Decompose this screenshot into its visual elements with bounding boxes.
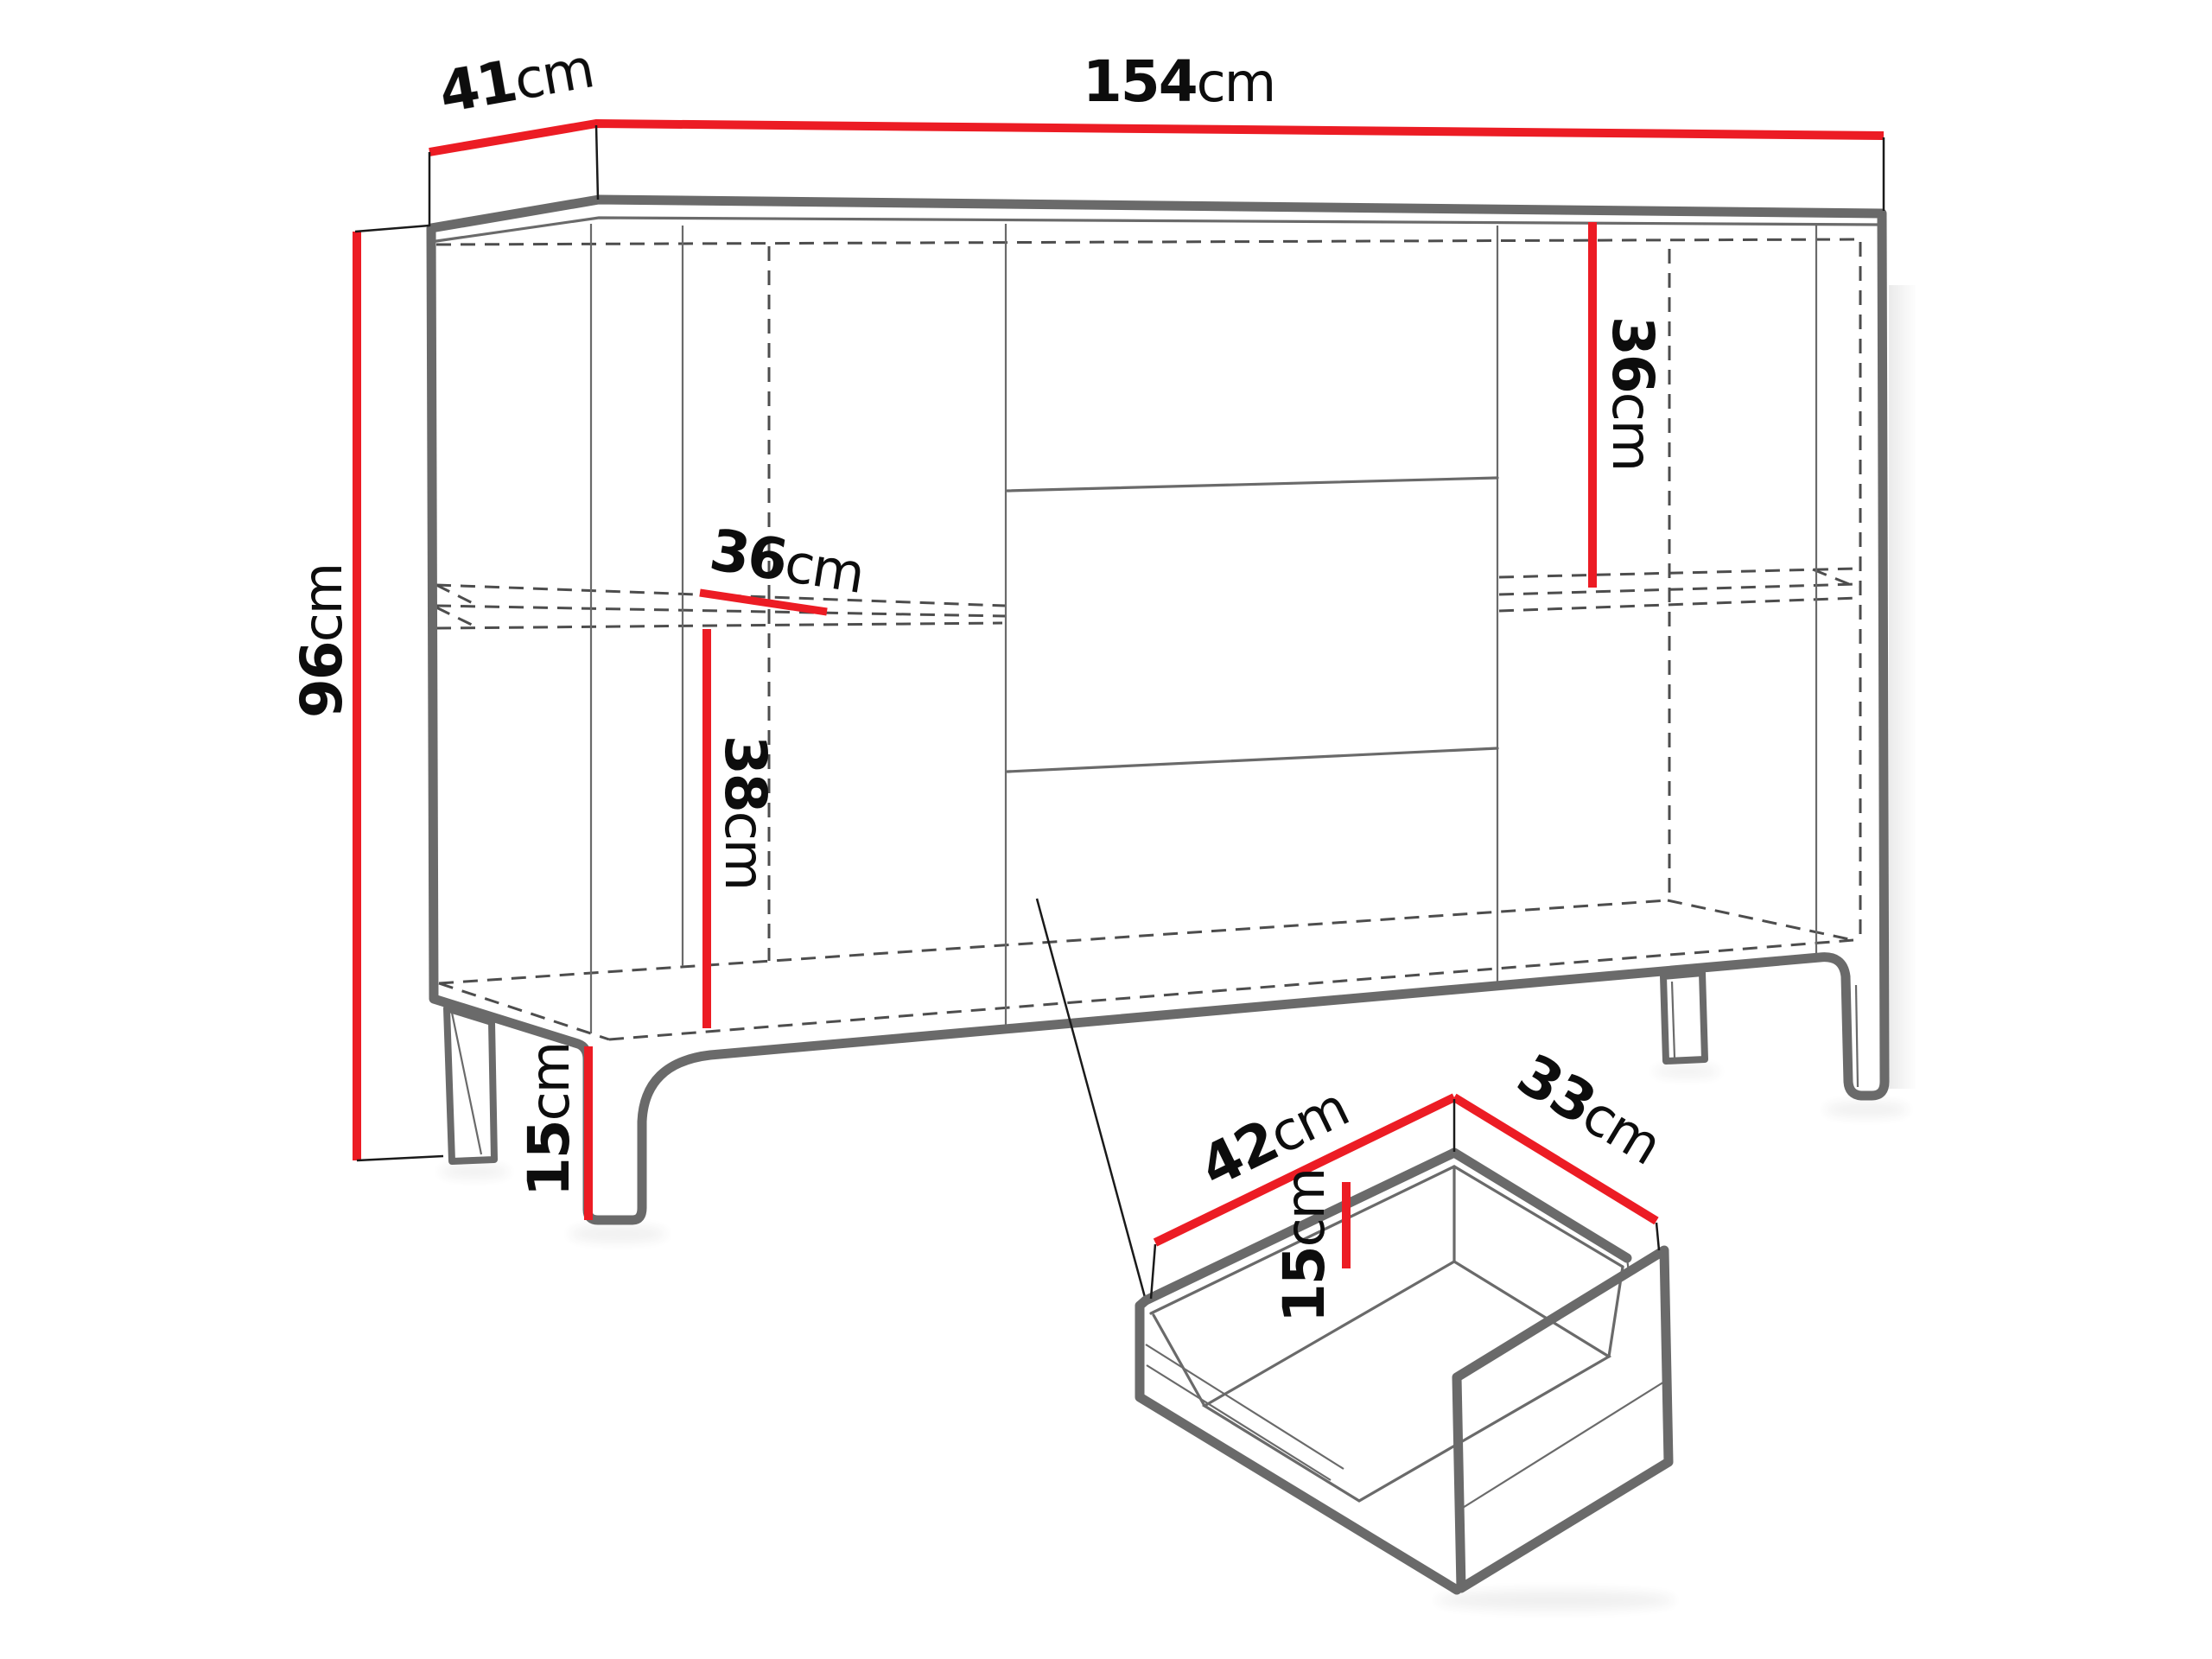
dim-line-41-154 <box>429 124 1884 152</box>
drawer-divider-1 <box>1007 478 1497 491</box>
label-height-96: 96cm <box>289 564 355 718</box>
drawer-divider-2 <box>1007 748 1497 772</box>
label-drawer-height-15: 15cm <box>1271 1169 1338 1323</box>
dimension-diagram: 41cm 154cm 96cm 36cm 38cm 15cm 36cm 42cm… <box>0 0 2212 1659</box>
carcass-top-front-edge <box>436 218 1878 241</box>
label-depth-41: 41cm <box>435 34 598 126</box>
label-drawer-depth-33: 33cm <box>1506 1041 1673 1178</box>
hidden-top-edge <box>436 239 1859 245</box>
diagram-canvas: 41cm 154cm 96cm 36cm 38cm 15cm 36cm 42cm… <box>0 0 2212 1659</box>
left-shelf-hidden <box>436 585 1005 628</box>
right-shelf-hidden <box>1499 569 1858 611</box>
label-right-shelf-36: 36cm <box>1599 316 1666 470</box>
label-shelf-depth-36: 36cm <box>705 517 868 607</box>
dimension-lines <box>357 124 1884 1268</box>
label-leg-height-15: 15cm <box>516 1043 582 1197</box>
label-shelf-clearance-38: 38cm <box>712 735 779 889</box>
drawer-fill <box>1140 1153 1669 1588</box>
drawer-detail <box>1140 1153 1669 1590</box>
label-width-154: 154cm <box>1083 48 1274 115</box>
front-right-leg-inner <box>1856 985 1858 1087</box>
back-left-leg <box>447 1008 494 1161</box>
drawer-pointer-line <box>1037 899 1146 1300</box>
back-right-leg <box>1663 973 1705 1061</box>
